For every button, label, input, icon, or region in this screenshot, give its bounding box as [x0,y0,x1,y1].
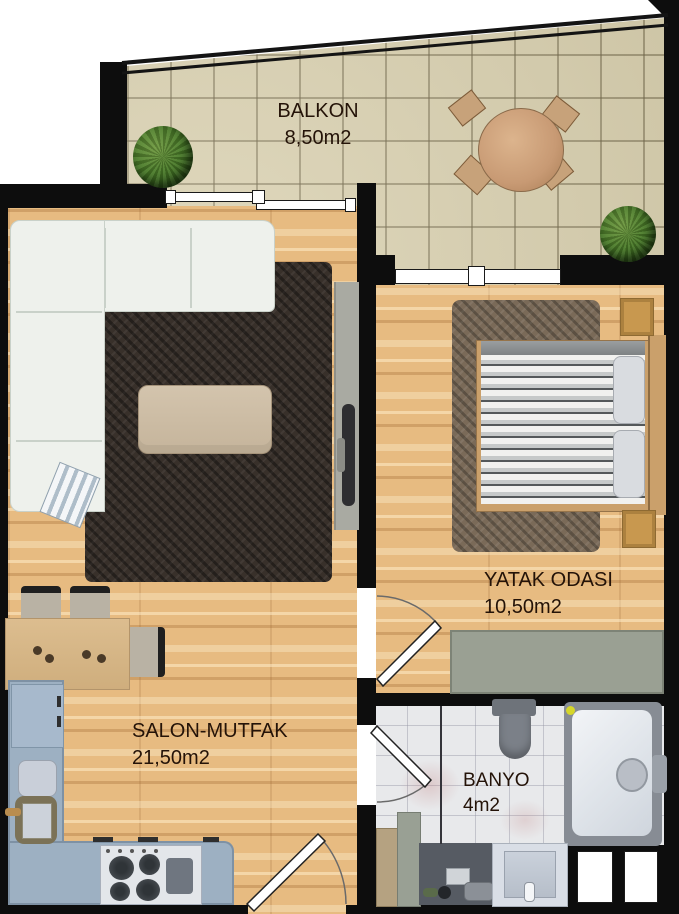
counter-accessory [423,888,438,897]
bedroom-door-opening [357,588,376,678]
cabinet-handle [138,837,158,842]
bathroom-cabinet [397,812,421,907]
table-setting [45,654,54,663]
wall-salon-bath-lower [357,805,376,905]
plant [133,126,193,188]
stove-knob [118,849,122,853]
room-name: BANYO [463,768,530,793]
wall-left [0,184,8,914]
toilet-bowl [499,714,531,759]
bathroom-floor-stain [400,760,460,810]
wall-bedroom-top-right [560,255,670,285]
door-handle-dot [566,706,575,715]
sofa-seam [16,440,102,442]
wall-salon-bedroom-mid [357,678,376,725]
table-setting [33,646,42,655]
room-name: BALKON [233,98,403,125]
bathroom-window [624,851,658,903]
bathroom-cabinet [376,828,399,907]
bathtub-drain [616,758,648,792]
stove-griddle [166,858,193,894]
stove-burner [136,879,160,901]
room-label-yatak-odasi: YATAK ODASI 10,50m2 [484,567,613,621]
bathroom-door-opening [357,725,376,805]
balcony-sliding-door-cap [345,198,356,212]
room-area: 4m2 [463,793,530,818]
bed-duvet-fold [481,341,645,355]
sofa-seam [190,228,192,308]
cabinet-handle [203,837,219,842]
cabinet-handle [93,837,113,842]
table-setting [97,654,106,663]
sofa-seam [104,228,106,308]
room-name: SALON-MUTFAK [132,718,288,745]
dining-chair [127,627,165,677]
balcony-sliding-door-cap [165,190,176,204]
floor-plan: BALKON 8,50m2 YATAK ODASI 10,50m2 SALON-… [0,0,679,914]
coffee-table [138,385,272,454]
bathroom-window [577,851,613,903]
balcony-table [478,108,564,192]
wall-window-stub [376,255,395,285]
stove-burner [109,856,134,880]
balcony-sliding-door-track [167,192,265,202]
sofa-seam [16,311,102,313]
room-name: YATAK ODASI [484,567,613,594]
cabinet-handle [57,696,61,707]
balcony-sliding-door-track [256,200,354,210]
stove-burner [110,882,130,901]
stove-knob [142,849,146,853]
stove-burner [139,854,160,875]
bedroom-window-cap [468,266,485,286]
room-area: 21,50m2 [132,745,288,772]
wall-salon-top [0,184,167,208]
faucet-icon [5,808,21,816]
stove-knob [130,849,134,853]
balcony-sliding-door-cap [252,190,265,204]
nightstand [620,298,654,336]
nightstand [622,510,656,548]
wall-salon-bedroom-upper [357,183,376,588]
room-area: 8,50m2 [233,125,403,152]
tv-stand [337,438,345,472]
pillow [613,356,645,424]
room-label-balkon: BALKON 8,50m2 [233,98,403,152]
dish-drainer [18,760,57,797]
bed-headboard [648,335,666,515]
wardrobe [450,630,664,694]
plant [600,206,656,262]
stove-knob [106,849,110,853]
wall-bottom-left [0,905,248,914]
kitchen-sink-basin [22,803,52,839]
washbasin-tap [524,882,535,902]
table-setting [82,650,91,659]
room-area: 10,50m2 [484,594,613,621]
wall-pier-top-left [100,62,127,187]
counter-accessory [438,886,451,899]
room-label-salon-mutfak: SALON-MUTFAK 21,50m2 [132,718,288,772]
pillow [613,430,645,498]
room-label-banyo: BANYO 4m2 [463,768,530,818]
stove-knob [154,849,158,853]
cabinet-handle [57,716,61,727]
bathtub-faucet [652,755,667,793]
counter-accessory [464,882,494,901]
